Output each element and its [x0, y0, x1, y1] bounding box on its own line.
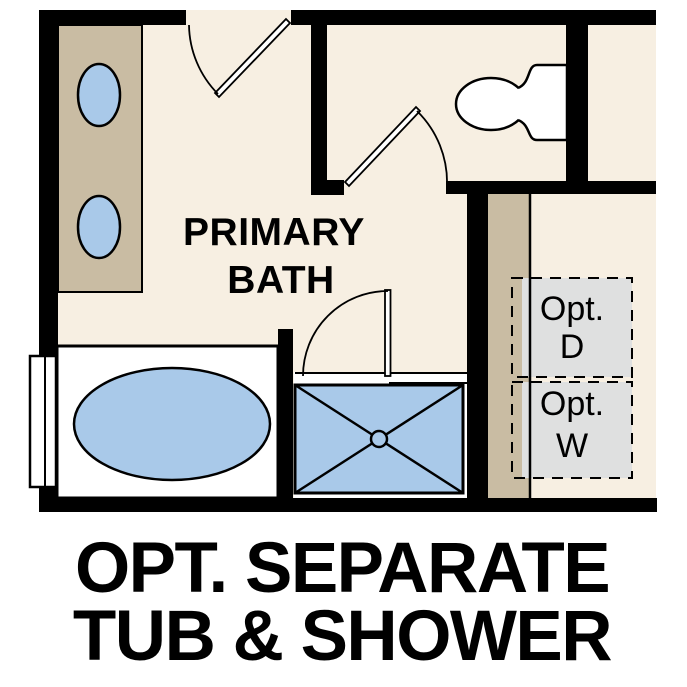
room-label-line1: PRIMARY	[183, 211, 365, 254]
wall-laundry-left	[467, 194, 488, 498]
wall-left-upper	[39, 10, 58, 357]
door-leaf-shower	[385, 290, 391, 376]
caption-line2: TUB & SHOWER	[73, 597, 611, 676]
tub-area	[57, 346, 278, 498]
floor-plan-drawing: PRIMARY BATH Opt. D Opt. W OPT. SEPARATE…	[0, 0, 687, 687]
shower-drain	[371, 431, 387, 447]
opt-washer-letter: W	[556, 427, 588, 465]
wall-hall-south	[446, 181, 656, 194]
vanity	[58, 25, 142, 292]
window-symbol	[30, 356, 56, 487]
wall-bottom	[39, 498, 657, 512]
wall-toilet-right	[566, 25, 588, 182]
opt-dryer-letter: D	[560, 328, 585, 366]
vanity-sink-top	[78, 64, 120, 126]
vanity-sink-bottom	[78, 196, 120, 258]
wall-bath-hall	[311, 25, 327, 181]
toilet-bowl	[456, 78, 526, 130]
wall-top-right	[291, 10, 656, 25]
wall-tub-shower	[278, 329, 293, 498]
room-label-line2: BATH	[227, 259, 334, 302]
window-frame	[30, 356, 56, 487]
shower-area	[294, 372, 467, 498]
wall-top-left	[39, 10, 186, 25]
opt-dryer-label: Opt.	[540, 290, 604, 328]
floor-plan-figure: PRIMARY BATH Opt. D Opt. W OPT. SEPARATE…	[0, 0, 687, 687]
wall-bath-hall-stub	[311, 180, 344, 195]
opt-washer-label: Opt.	[540, 385, 604, 423]
bathtub-symbol	[74, 368, 270, 480]
